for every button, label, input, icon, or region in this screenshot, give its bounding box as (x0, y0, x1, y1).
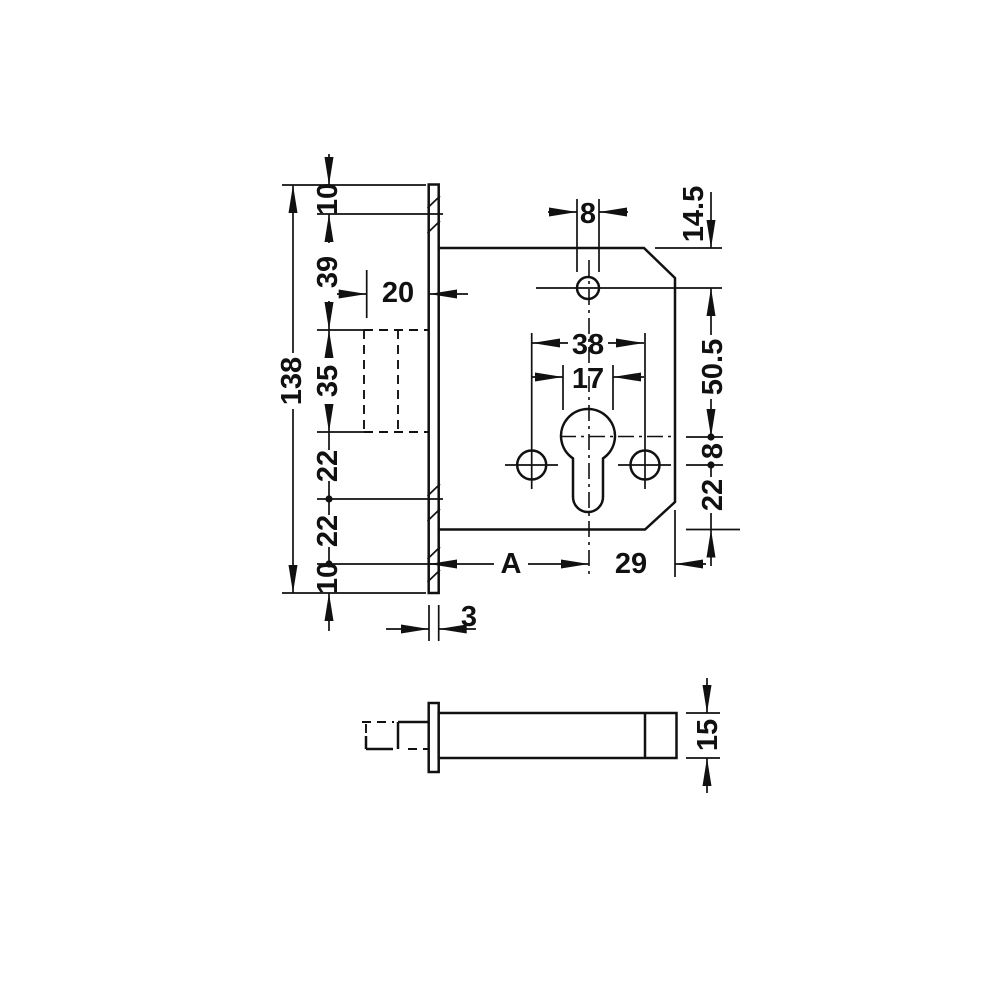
dim-50-5: 50.5 (697, 339, 729, 395)
side-dimension-15: 15 (686, 678, 724, 793)
dim-29: 29 (615, 548, 647, 580)
dim-22-lower: 22 (312, 515, 344, 547)
dim-17: 17 (572, 363, 604, 395)
side-bolt-hidden (362, 722, 429, 749)
dim-10-bottom: 10 (312, 562, 344, 594)
dim-backset-a: A (501, 548, 522, 580)
lock-case-outline (439, 248, 675, 530)
side-faceplate (429, 703, 439, 772)
dim-22-upper: 22 (312, 450, 344, 482)
dim-8-top: 8 (580, 198, 596, 230)
front-view: 10 39 35 22 22 10 138 20 8 14.5 38 17 50… (276, 154, 740, 641)
dim-138: 138 (276, 357, 308, 405)
dim-3: 3 (461, 601, 477, 633)
dim-39: 39 (312, 256, 344, 288)
dim-10-top: 10 (312, 183, 344, 215)
drawing-page: 10 39 35 22 22 10 138 20 8 14.5 38 17 50… (0, 0, 1000, 1000)
dim-15: 15 (692, 719, 724, 751)
side-view: 15 (362, 678, 724, 793)
dim-38: 38 (572, 329, 604, 361)
dim-20: 20 (382, 277, 414, 309)
dim-35: 35 (312, 365, 344, 397)
euro-cylinder-hole (561, 409, 615, 512)
side-lock-case (439, 713, 677, 758)
front-dimension-labels: 10 39 35 22 22 10 138 20 8 14.5 38 17 50… (276, 183, 729, 633)
hidden-follower-outline (364, 330, 428, 432)
dim-22-right: 22 (697, 479, 729, 511)
dim-8-right: 8 (697, 443, 729, 459)
dim-14-5: 14.5 (678, 186, 710, 242)
faceplate (428, 185, 441, 594)
lock-technical-drawing: 10 39 35 22 22 10 138 20 8 14.5 38 17 50… (0, 0, 1000, 1000)
